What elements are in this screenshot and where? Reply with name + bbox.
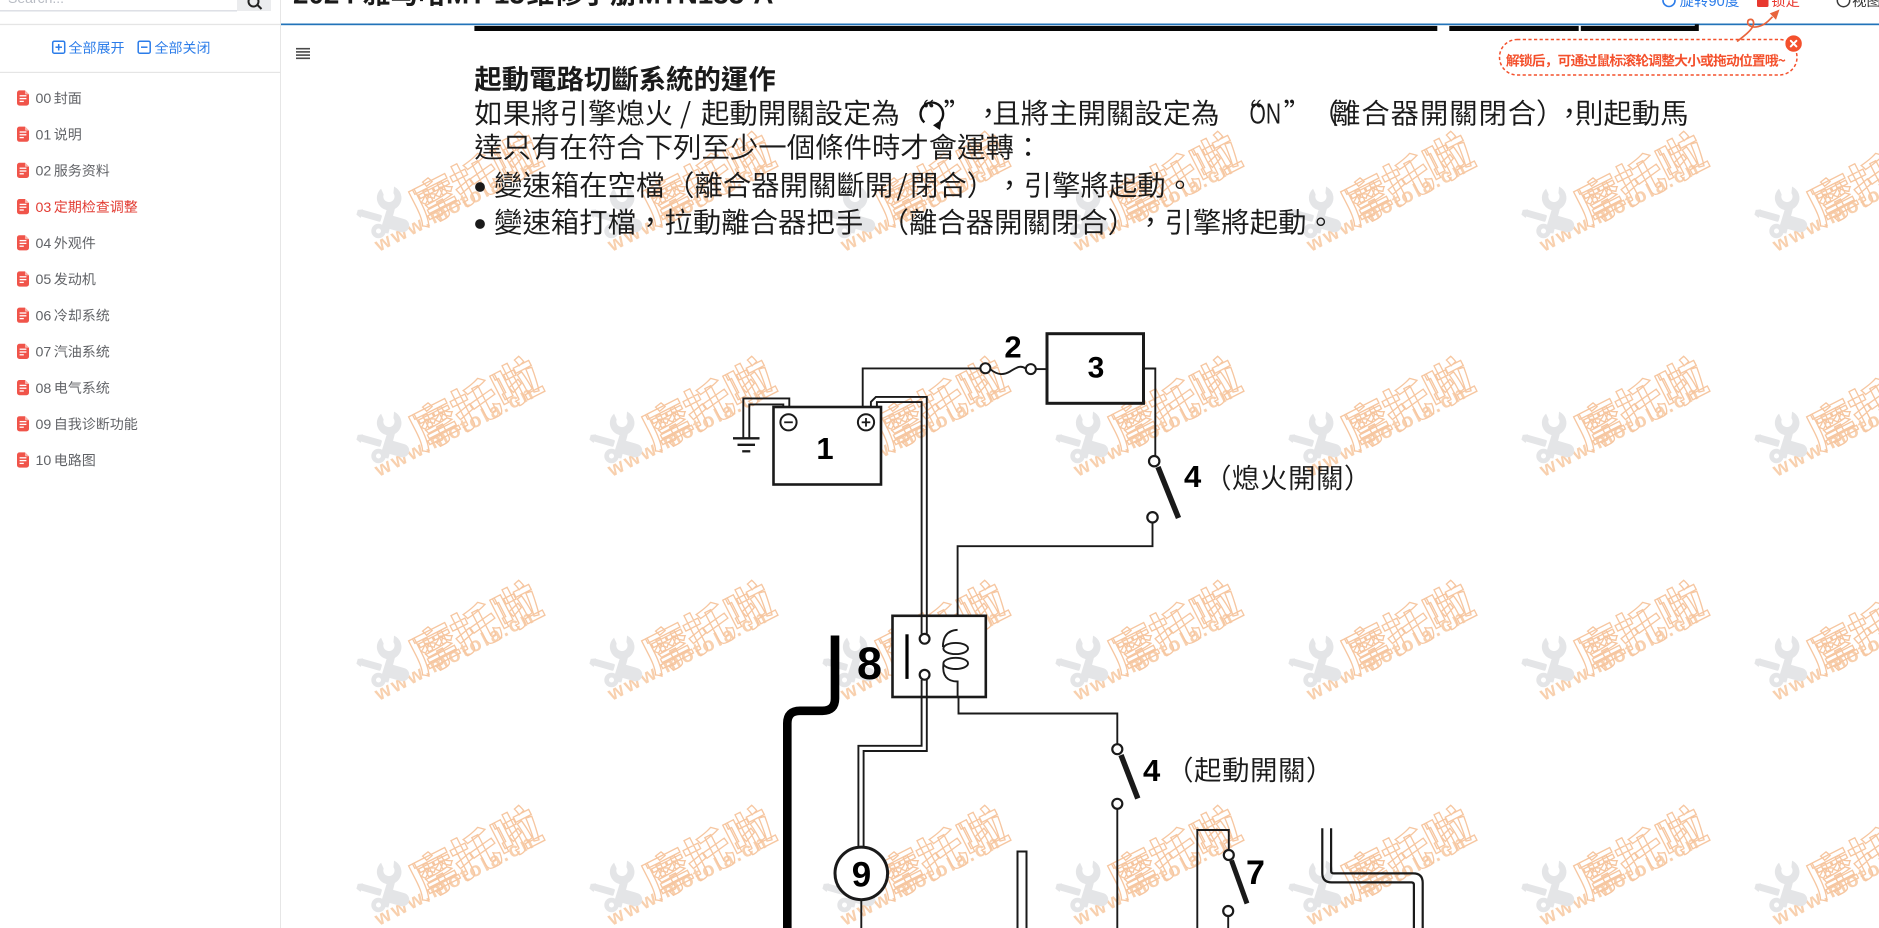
svg-text:01: 01 [36,127,52,143]
svg-text:00: 00 [36,91,52,107]
svg-text:05: 05 [36,272,52,288]
svg-text:7: 7 [1246,854,1265,892]
svg-text:09: 09 [36,417,52,433]
svg-text:03: 03 [36,200,52,216]
svg-text:2: 2 [1004,330,1021,365]
svg-text:MT-15: MT-15 [446,0,525,10]
svg-text:3: 3 [1088,352,1105,385]
svg-text:07: 07 [36,345,52,361]
svg-text:4: 4 [1184,459,1202,494]
svg-text:MTN155-A: MTN155-A [638,0,774,10]
svg-text:10: 10 [36,453,52,469]
svg-text:90: 90 [1709,0,1725,10]
svg-text:08: 08 [36,381,52,397]
svg-text:Search...: Search... [8,0,64,6]
svg-text:04: 04 [36,236,52,252]
svg-text:8: 8 [857,638,882,689]
svg-text:1: 1 [816,431,833,466]
svg-text:9: 9 [852,856,871,895]
svg-text:4: 4 [1143,753,1161,788]
svg-text:02: 02 [36,164,52,180]
svg-text:2024: 2024 [293,0,355,10]
svg-text:ON: ON [1250,99,1282,131]
svg-text:06: 06 [36,308,52,324]
